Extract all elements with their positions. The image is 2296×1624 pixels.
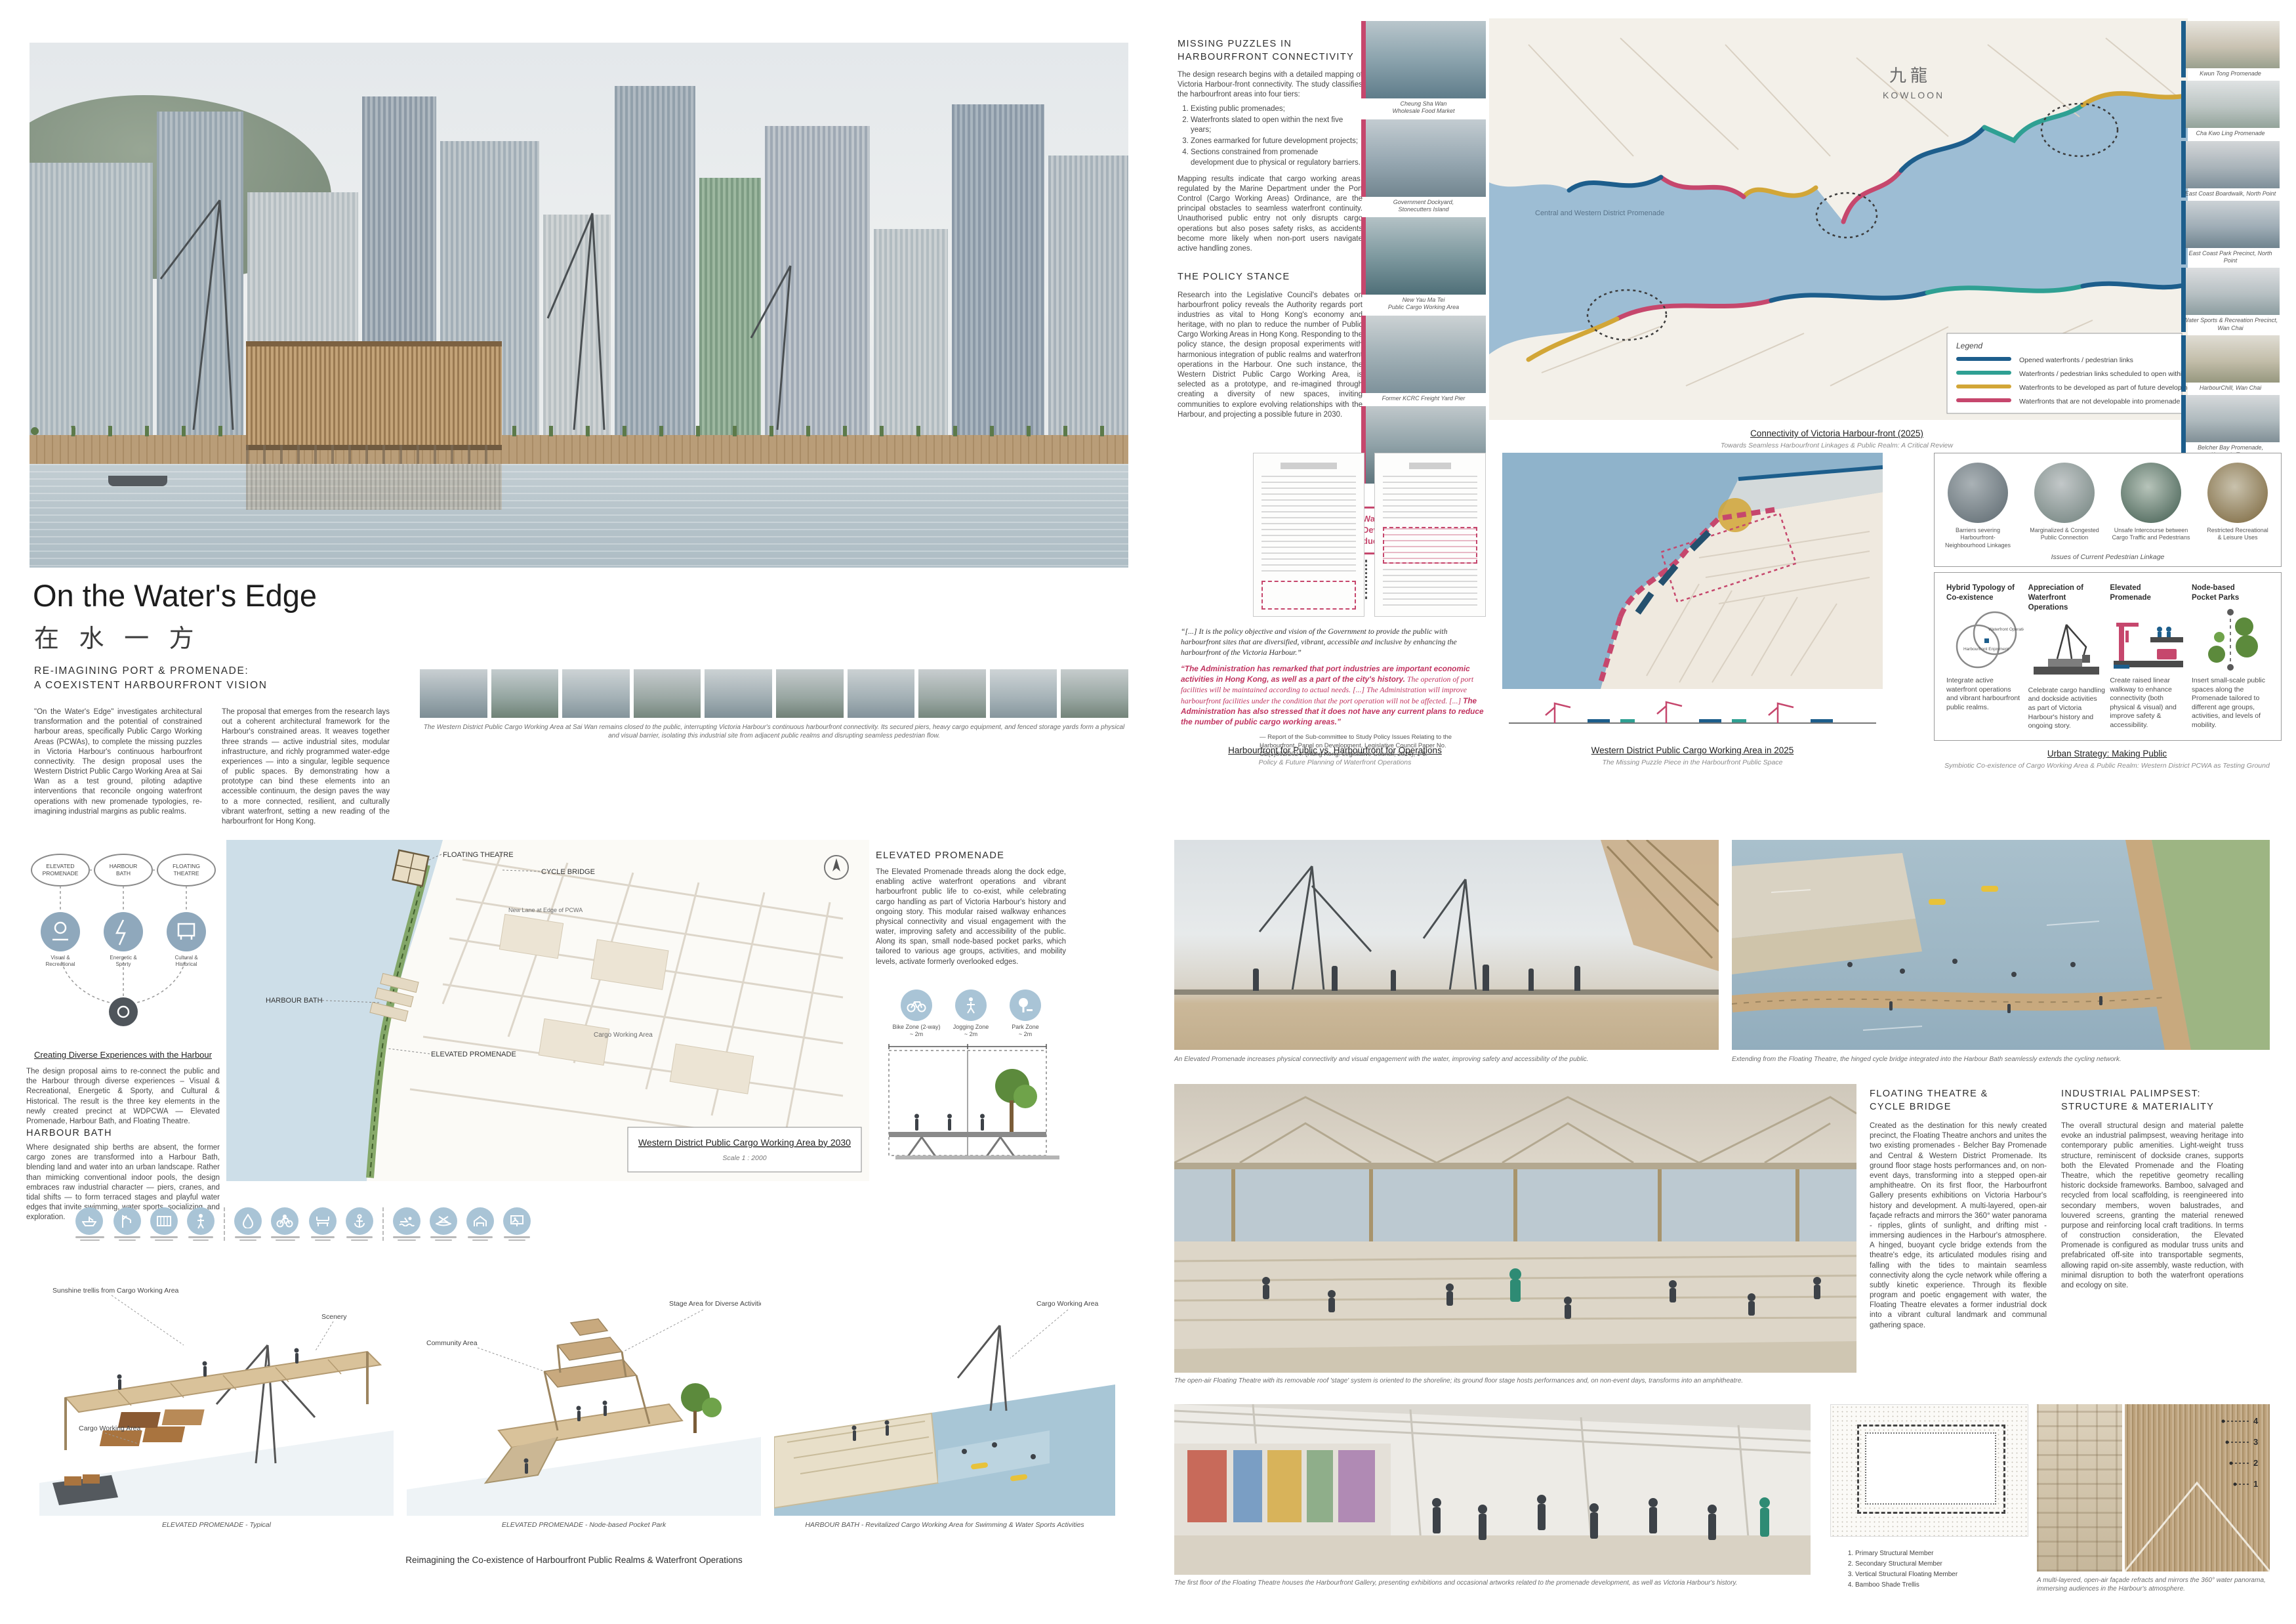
palimpsest-heading: INDUSTRIAL PALIMPSEST: STRUCTURE & MATER… bbox=[2061, 1088, 2244, 1114]
issue-item: Restricted Recreational & Leisure Uses bbox=[2198, 463, 2277, 549]
pedestrian-icon bbox=[955, 989, 987, 1021]
palimpsest-text: INDUSTRIAL PALIMPSEST: STRUCTURE & MATER… bbox=[2061, 1088, 2244, 1291]
site-photo bbox=[776, 669, 844, 718]
policy-quote-block: “[...] It is the policy objective and vi… bbox=[1181, 627, 1489, 759]
svg-text:Recreational: Recreational bbox=[46, 961, 75, 967]
amenity-item bbox=[466, 1207, 494, 1241]
strip-item: Cheung Sha Wan Wholesale Food Market bbox=[1361, 21, 1486, 115]
axon-harbour-bath: Cargo Working Area bbox=[774, 1266, 1115, 1516]
wd-map-caption: Western District Public Cargo Working Ar… bbox=[1502, 745, 1883, 766]
promenade-annotation: Central and Western District Promenade bbox=[1535, 209, 1664, 217]
svg-text:Waterfronts that are not devel: Waterfronts that are not developable int… bbox=[2019, 398, 2188, 406]
floating-theatre-heading: FLOATING THEATRE & CYCLE BRIDGE bbox=[1870, 1088, 2047, 1114]
container-icon bbox=[150, 1207, 178, 1235]
strip-item: Cha Kwo Ling Promenade bbox=[2181, 81, 2280, 137]
bike-icon bbox=[901, 989, 932, 1021]
structure-legend: Primary Structural Member Secondary Stru… bbox=[1843, 1549, 1958, 1591]
pavilion-reflection bbox=[246, 464, 502, 510]
amenity-item bbox=[346, 1207, 373, 1241]
tier-item: Waterfronts slated to open within the ne… bbox=[1191, 115, 1363, 135]
amenity-item bbox=[430, 1207, 457, 1241]
site-photo bbox=[705, 669, 772, 718]
big-map-caption: Connectivity of Victoria Harbour-front (… bbox=[1555, 428, 2119, 449]
strip-item: Former KCRC Freight Yard Pier bbox=[1361, 316, 1486, 402]
amenity-item bbox=[187, 1207, 215, 1241]
cyclist-icon bbox=[271, 1207, 298, 1235]
axon-caption-2: ELEVATED PROMENADE - Node-based Pocket P… bbox=[407, 1521, 761, 1530]
svg-text:Historical: Historical bbox=[176, 961, 197, 967]
svg-text:PROMENADE: PROMENADE bbox=[43, 870, 79, 877]
crane-silhouettes bbox=[30, 121, 1128, 463]
quadrant-top-right: MISSING PUZZLES IN HARBOURFRONT CONNECTI… bbox=[1148, 0, 2296, 814]
amenity-icon-row bbox=[75, 1207, 666, 1241]
zone-item: Park Zone ~ 2m bbox=[1001, 989, 1050, 1039]
strip-item: Water Sports & Recreation Precinct, Wan … bbox=[2181, 268, 2280, 332]
elevated-promenade-diagram bbox=[2110, 608, 2187, 671]
amenity-item bbox=[75, 1207, 104, 1241]
strip-item: New Yau Ma Tei Public Cargo Working Area bbox=[1361, 217, 1486, 312]
tier-item: Sections constrained from promenade deve… bbox=[1191, 148, 1363, 167]
svg-text:BATH: BATH bbox=[116, 870, 131, 877]
axon-caption-1: ELEVATED PROMENADE - Typical bbox=[39, 1521, 394, 1530]
site-photo bbox=[420, 669, 487, 718]
axon-caption-3: HARBOUR BATH - Revitalized Cargo Working… bbox=[774, 1521, 1115, 1530]
svg-text:New Lane at Edge of PCWA: New Lane at Edge of PCWA bbox=[508, 907, 583, 913]
victoria-harbour-map: 九龍 KOWLOON Central and Western District … bbox=[1489, 18, 2188, 420]
svg-text:FLOATING THEATRE: FLOATING THEATRE bbox=[443, 851, 514, 859]
project-title-chinese: 在 水 一 方 bbox=[34, 618, 201, 654]
kowloon-label-zh: 九龍 bbox=[1889, 66, 1931, 85]
svg-text:Western District Public Cargo: Western District Public Cargo Working Ar… bbox=[638, 1137, 851, 1148]
render-harbourfront-gallery bbox=[1174, 1404, 1811, 1575]
strip-item: Kwun Tong Promenade bbox=[2181, 21, 2280, 77]
svg-text:3: 3 bbox=[2253, 1437, 2258, 1447]
quadrant-bottom-left: ELEVATEDPROMENADE HARBOURBATH FLOATINGTH… bbox=[0, 814, 1148, 1624]
structure-legend-item: Primary Structural Member bbox=[1855, 1549, 1958, 1559]
promenade-section-sketch bbox=[876, 1040, 1073, 1181]
policy-body: Research into the Legislative Council's … bbox=[1178, 291, 1363, 420]
pocket-parks-diagram bbox=[2192, 608, 2269, 671]
bench-icon bbox=[309, 1207, 337, 1235]
site-photo bbox=[848, 669, 915, 718]
facade-materiality-collage: 4321 bbox=[2037, 1404, 2270, 1572]
site-photo bbox=[918, 669, 986, 718]
boat-icon bbox=[75, 1207, 103, 1235]
experiences-body: The design proposal aims to re-connect t… bbox=[26, 1067, 220, 1127]
amenity-item bbox=[393, 1207, 420, 1241]
facade-caption: A multi-layered, open-air façade refract… bbox=[2037, 1576, 2270, 1593]
intro-paragraph-2: The proposal that emerges from the resea… bbox=[222, 707, 390, 827]
structural-plan-diagram bbox=[1830, 1404, 2028, 1537]
project-title: On the Water's Edge bbox=[33, 577, 317, 614]
map-legend: Legend Opened waterfronts / pedestrian l… bbox=[1947, 333, 2188, 413]
svg-text:FLOATING: FLOATING bbox=[173, 863, 200, 869]
issue-item: Marginalized & Congested Public Connecti… bbox=[2025, 463, 2104, 549]
palimpsest-body: The overall structural design and materi… bbox=[2061, 1121, 2244, 1291]
amenity-item bbox=[503, 1207, 531, 1241]
experiences-flow-diagram: ELEVATEDPROMENADE HARBOURBATH FLOATINGTH… bbox=[26, 846, 220, 1043]
svg-text:Harbourfront Enjoyment: Harbourfront Enjoyment bbox=[1963, 647, 2009, 652]
venn-diagram: Waterfront Operations Harbourfront Enjoy… bbox=[1946, 608, 2024, 671]
amenity-group bbox=[234, 1207, 384, 1241]
presentation-board: { "accents": { "pink": "#c6476d", "blue"… bbox=[0, 0, 2296, 1624]
zone-item: Jogging Zone ~ 2m bbox=[947, 989, 995, 1039]
svg-text:Cargo Working Area: Cargo Working Area bbox=[594, 1031, 653, 1039]
connectivity-mapping-paragraph: Mapping results indicate that cargo work… bbox=[1178, 175, 1363, 254]
legco-document-page bbox=[1253, 453, 1364, 617]
boat bbox=[108, 476, 167, 486]
strip-item: Government Dockyard, Stonecutters Island bbox=[1361, 119, 1486, 214]
bottom-left-caption: Reimagining the Co-existence of Harbourf… bbox=[197, 1555, 951, 1565]
svg-text:Scenery: Scenery bbox=[321, 1313, 347, 1321]
site-photo bbox=[491, 669, 559, 718]
svg-text:Opened waterfronts / pedestria: Opened waterfronts / pedestrian links bbox=[2019, 356, 2133, 364]
svg-text:ELEVATED: ELEVATED bbox=[46, 863, 74, 869]
site-photo-strip bbox=[420, 669, 1128, 718]
plan-caption-box: Western District Public Cargo Working Ar… bbox=[628, 1127, 861, 1172]
kayak-icon bbox=[430, 1207, 457, 1235]
crane-icon bbox=[113, 1207, 141, 1235]
elevated-promenade-heading: ELEVATED PROMENADE bbox=[876, 850, 1004, 863]
render-bridge-caption: Extending from the Floating Theatre, the… bbox=[1732, 1055, 2270, 1064]
svg-text:Waterfronts / pedestrian links: Waterfronts / pedestrian links scheduled… bbox=[2019, 370, 2188, 378]
harbour-bath-heading: HARBOUR BATH bbox=[26, 1127, 112, 1140]
amenity-group bbox=[393, 1207, 531, 1241]
svg-text:Stage Area for Diverse Activit: Stage Area for Diverse Activities bbox=[669, 1300, 761, 1308]
policy-heading: THE POLICY STANCE bbox=[1178, 271, 1363, 284]
svg-text:CYCLE BRIDGE: CYCLE BRIDGE bbox=[541, 868, 595, 876]
connectivity-heading: MISSING PUZZLES IN HARBOURFRONT CONNECTI… bbox=[1178, 38, 1363, 64]
svg-text:HARBOUR: HARBOUR bbox=[110, 863, 138, 869]
dotted-connector-down bbox=[1365, 560, 1367, 599]
tier-item: Existing public promenades; bbox=[1191, 104, 1363, 114]
svg-text:Sunshine trellis from Cargo Wo: Sunshine trellis from Cargo Working Area bbox=[52, 1287, 179, 1295]
issues-panel-caption: Issues of Current Pedestrian Linkage bbox=[1935, 553, 2281, 562]
connectivity-intro: The design research begins with a detail… bbox=[1178, 70, 1363, 100]
svg-text:Energetic &: Energetic & bbox=[110, 955, 137, 961]
water-drop-icon bbox=[234, 1207, 262, 1235]
panorama-caption: The open-air Floating Theatre with its r… bbox=[1174, 1377, 1856, 1385]
strategy-item: Node-based Pocket Parks Insert small-sca… bbox=[2192, 583, 2269, 731]
floating-theatre-text: FLOATING THEATRE & CYCLE BRIDGE Created … bbox=[1870, 1088, 2047, 1331]
site-plan-2030: FLOATING THEATRE CYCLE BRIDGE HARBOUR BA… bbox=[226, 840, 869, 1181]
gallery-icon bbox=[503, 1207, 531, 1235]
strategy-item: Elevated Promenade Create raised linear … bbox=[2110, 583, 2187, 731]
svg-text:Cargo Working Area: Cargo Working Area bbox=[79, 1425, 141, 1432]
svg-text:1: 1 bbox=[2253, 1479, 2258, 1489]
render-promenade-caption: An Elevated Promenade increases physical… bbox=[1174, 1055, 1719, 1064]
svg-text:THEATRE: THEATRE bbox=[173, 870, 199, 877]
tree-icon bbox=[1010, 989, 1041, 1021]
amenity-item bbox=[271, 1207, 300, 1241]
harbour-water bbox=[30, 464, 1128, 568]
elevated-promenade-body: The Elevated Promenade threads along the… bbox=[876, 867, 1066, 967]
svg-text:2: 2 bbox=[2253, 1458, 2258, 1468]
svg-text:Legend: Legend bbox=[1956, 341, 1982, 350]
strategy-item: Appreciation of Waterfront Operations Ce… bbox=[2028, 583, 2106, 731]
opened-waterfronts-strip: Kwun Tong Promenade Cha Kwo Ling Promena… bbox=[2181, 21, 2280, 502]
quadrant-bottom-right: An Elevated Promenade increases physical… bbox=[1148, 814, 2296, 1624]
swimmer-icon bbox=[393, 1207, 420, 1235]
svg-text:ELEVATED PROMENADE: ELEVATED PROMENADE bbox=[431, 1051, 516, 1058]
axon-pocket-park: Community Area Stage Area for Diverse Ac… bbox=[407, 1266, 761, 1516]
kowloon-label-en: KOWLOON bbox=[1883, 90, 1944, 100]
render-elevated-promenade bbox=[1174, 840, 1719, 1050]
hero-render bbox=[30, 43, 1128, 568]
strip-item: East Coast Park Precinct, North Point bbox=[2181, 201, 2280, 265]
strategy-item: Hybrid Typology of Co-existence Waterfro… bbox=[1946, 583, 2024, 731]
issues-panel: Barriers severing Harbourfront- Neighbou… bbox=[1934, 453, 2282, 567]
strategy-panel: Hybrid Typology of Co-existence Waterfro… bbox=[1934, 572, 2282, 741]
site-photo-strip-caption: The Western District Public Cargo Workin… bbox=[420, 723, 1128, 740]
amenity-group bbox=[75, 1207, 225, 1241]
amenity-item bbox=[309, 1207, 337, 1241]
connectivity-tier-list: Existing public promenades; Waterfronts … bbox=[1178, 104, 1363, 168]
svg-text:Scale 1 : 2000: Scale 1 : 2000 bbox=[722, 1154, 766, 1162]
project-tagline: RE-IMAGINING PORT & PROMENADE: A COEXIST… bbox=[34, 664, 268, 694]
structure-legend-item: Secondary Structural Member bbox=[1855, 1559, 1958, 1570]
experiences-heading: Creating Diverse Experiences with the Ha… bbox=[26, 1050, 220, 1060]
policy-section-caption: Harbourfront for Public vs. Harbourfront… bbox=[1181, 745, 1489, 766]
render-harbour-bath-aerial bbox=[1732, 840, 2270, 1050]
strategy-caption: Urban Strategy: Making Public Symbiotic … bbox=[1934, 748, 2280, 770]
legco-document-page bbox=[1374, 453, 1486, 617]
site-photo bbox=[634, 669, 701, 718]
stage-icon bbox=[466, 1207, 494, 1235]
site-photo bbox=[990, 669, 1057, 718]
amenity-item bbox=[150, 1207, 178, 1241]
strip-item: East Coast Boardwalk, North Point bbox=[2181, 141, 2280, 198]
svg-text:Waterfront Operations: Waterfront Operations bbox=[1988, 627, 2024, 632]
policy-quote-1: “[...] It is the policy objective and vi… bbox=[1181, 627, 1489, 658]
strip-item: HarbourChill, Wan Chai bbox=[2181, 335, 2280, 392]
svg-text:Cargo Working Area: Cargo Working Area bbox=[1036, 1300, 1099, 1308]
promenade-zone-icons: Bike Zone (2-way) ~ 2m Jogging Zone ~ 2m… bbox=[892, 989, 1050, 1039]
amenity-item bbox=[234, 1207, 262, 1241]
axon-elevated-typical: Sunshine trellis from Cargo Working Area… bbox=[39, 1266, 394, 1516]
zone-item: Bike Zone (2-way) ~ 2m bbox=[892, 989, 941, 1039]
svg-text:Visual &: Visual & bbox=[51, 955, 70, 961]
site-photo bbox=[562, 669, 630, 718]
crane-barge-illustration bbox=[2028, 618, 2106, 681]
wd-section-strip bbox=[1502, 694, 1883, 731]
svg-text:Sporty: Sporty bbox=[115, 961, 131, 967]
strip-item: Belcher Bay Promenade, Kennedy Town bbox=[2181, 395, 2280, 459]
quadrant-top-left: On the Water's Edge 在 水 一 方 RE-IMAGINING… bbox=[0, 0, 1148, 814]
tier-item: Zones earmarked for future development p… bbox=[1191, 136, 1363, 146]
research-text-column: MISSING PUZZLES IN HARBOURFRONT CONNECTI… bbox=[1178, 38, 1363, 420]
amenity-item bbox=[113, 1207, 141, 1241]
structure-legend-item: Vertical Structural Floating Member bbox=[1855, 1570, 1958, 1580]
worker-icon bbox=[187, 1207, 215, 1235]
western-district-map-2025 bbox=[1502, 453, 1883, 689]
svg-text:Cultural &: Cultural & bbox=[174, 955, 198, 961]
svg-text:4: 4 bbox=[2253, 1416, 2259, 1426]
issue-item: Barriers severing Harbourfront- Neighbou… bbox=[1938, 463, 2017, 549]
site-photo bbox=[1061, 669, 1128, 718]
floating-theatre-body: Created as the destination for this newl… bbox=[1870, 1121, 2047, 1331]
gallery-caption: The first floor of the Floating Theatre … bbox=[1174, 1579, 1811, 1587]
intro-paragraph-1: "On the Water's Edge" investigates archi… bbox=[34, 707, 202, 817]
svg-text:HARBOUR BATH: HARBOUR BATH bbox=[266, 997, 323, 1005]
svg-text:Community Area: Community Area bbox=[426, 1339, 478, 1347]
issue-item: Unsafe Intercourse between Cargo Traffic… bbox=[2112, 463, 2190, 549]
structure-legend-item: Bamboo Shade Trellis bbox=[1855, 1580, 1958, 1591]
anchor-icon bbox=[346, 1207, 373, 1235]
render-floating-theatre-panorama bbox=[1174, 1084, 1856, 1373]
svg-text:Waterfronts to be developed as: Waterfronts to be developed as part of f… bbox=[2019, 384, 2188, 392]
